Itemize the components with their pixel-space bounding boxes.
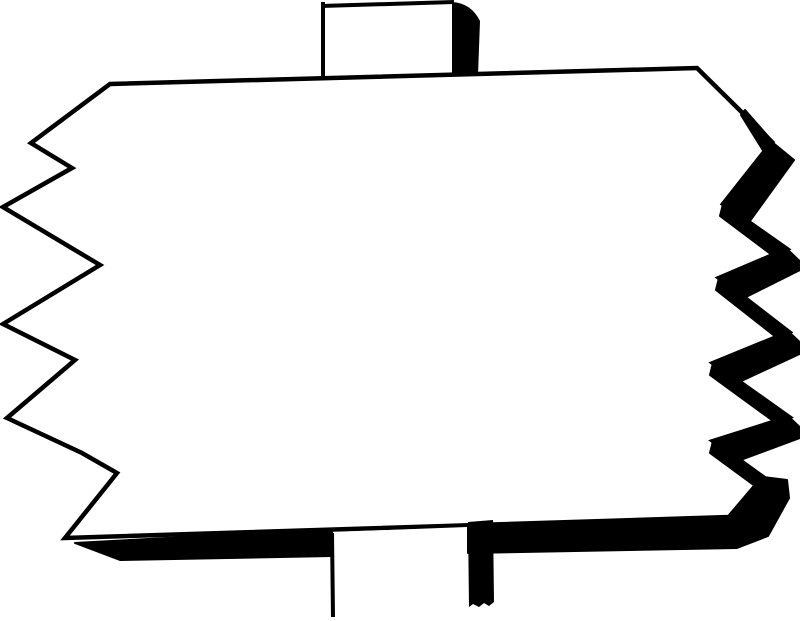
sign-board	[3, 68, 789, 538]
top-post	[321, 2, 480, 78]
bottom-post-shadow	[468, 520, 494, 607]
bottom-post	[332, 520, 494, 618]
clipart-canvas: Blank jagged-edge wooden sign on a post …	[0, 0, 800, 621]
top-post-face	[323, 4, 452, 76]
top-post-shadow	[452, 2, 480, 76]
bottom-post-left-line	[332, 533, 333, 617]
board-face-and-outline	[3, 68, 789, 538]
sign-clipart: Blank jagged-edge wooden sign on a post …	[0, 0, 800, 621]
bottom-post-face	[333, 527, 467, 618]
